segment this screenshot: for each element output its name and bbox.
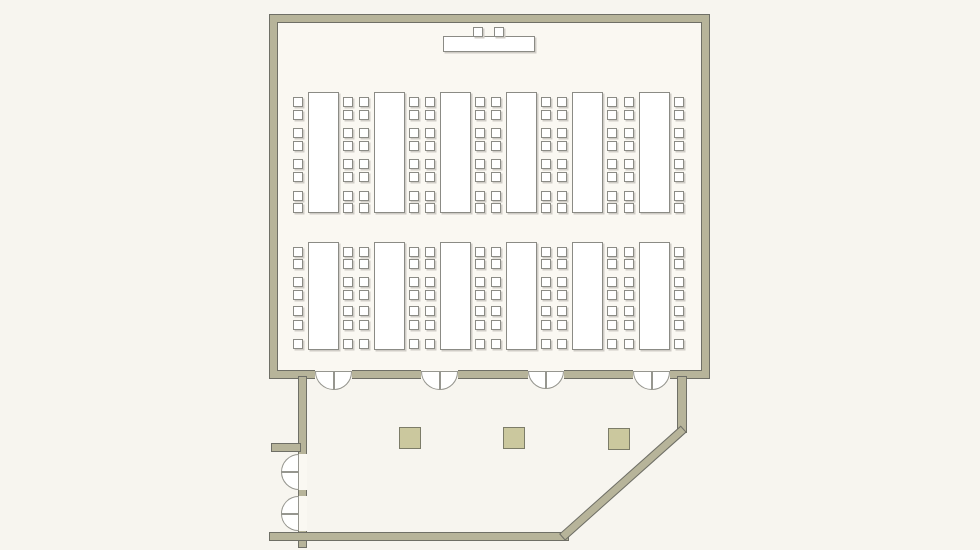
chair xyxy=(674,110,684,120)
chair xyxy=(343,339,353,349)
chair xyxy=(491,141,501,151)
chair xyxy=(607,339,617,349)
chair xyxy=(425,320,435,330)
chair xyxy=(674,306,684,316)
chair xyxy=(293,128,303,138)
chair xyxy=(674,259,684,269)
chair xyxy=(557,172,567,182)
chair xyxy=(674,141,684,151)
chair xyxy=(343,203,353,213)
structural-column xyxy=(503,427,525,449)
chair xyxy=(541,247,551,257)
chair xyxy=(359,159,369,169)
chair xyxy=(624,339,634,349)
chair xyxy=(343,320,353,330)
door-leaf xyxy=(440,371,459,390)
chair xyxy=(409,259,419,269)
door-opening xyxy=(298,454,307,490)
chair xyxy=(475,306,485,316)
chair xyxy=(624,203,634,213)
chair xyxy=(475,97,485,107)
chair xyxy=(624,191,634,201)
chair xyxy=(674,320,684,330)
chair xyxy=(674,247,684,257)
chair xyxy=(607,290,617,300)
banquet-table xyxy=(506,242,537,350)
chair xyxy=(491,247,501,257)
banquet-table xyxy=(572,92,603,213)
chair xyxy=(293,141,303,151)
chair xyxy=(343,128,353,138)
chair xyxy=(359,339,369,349)
lobby-bottom-wall xyxy=(270,533,568,540)
banquet-table xyxy=(572,242,603,350)
chair xyxy=(541,110,551,120)
chair xyxy=(557,306,567,316)
chair xyxy=(343,277,353,287)
chair xyxy=(607,320,617,330)
chair xyxy=(674,339,684,349)
banquet-table xyxy=(639,242,670,350)
chair xyxy=(359,247,369,257)
door-leaf xyxy=(281,496,299,514)
chair xyxy=(425,128,435,138)
chair xyxy=(541,172,551,182)
chair xyxy=(293,172,303,182)
chair xyxy=(557,128,567,138)
chair xyxy=(607,191,617,201)
chair xyxy=(409,159,419,169)
chair xyxy=(607,247,617,257)
chair xyxy=(425,172,435,182)
door-leaf xyxy=(281,472,299,490)
banquet-table xyxy=(374,242,405,350)
chair xyxy=(475,141,485,151)
chair xyxy=(343,259,353,269)
chair xyxy=(359,277,369,287)
chair xyxy=(674,159,684,169)
chair xyxy=(624,97,634,107)
chair xyxy=(475,110,485,120)
chair xyxy=(359,191,369,201)
chair xyxy=(343,191,353,201)
chair xyxy=(425,141,435,151)
chair xyxy=(541,203,551,213)
door-leaf xyxy=(528,371,546,389)
chair xyxy=(557,97,567,107)
chair xyxy=(607,97,617,107)
chair xyxy=(607,172,617,182)
chair xyxy=(607,128,617,138)
chair xyxy=(409,277,419,287)
chair xyxy=(624,128,634,138)
chair xyxy=(359,290,369,300)
chair xyxy=(409,339,419,349)
chair xyxy=(607,203,617,213)
chair xyxy=(343,172,353,182)
chair xyxy=(475,259,485,269)
chair xyxy=(607,110,617,120)
floor-plan xyxy=(0,0,980,550)
chair xyxy=(557,141,567,151)
chair xyxy=(607,277,617,287)
head-table xyxy=(443,36,535,52)
chair xyxy=(624,320,634,330)
chair xyxy=(293,277,303,287)
chair xyxy=(359,97,369,107)
chair xyxy=(425,247,435,257)
chair xyxy=(425,290,435,300)
chair xyxy=(674,128,684,138)
chair xyxy=(624,110,634,120)
chair xyxy=(624,141,634,151)
chair xyxy=(359,203,369,213)
chair xyxy=(409,172,419,182)
chair xyxy=(293,159,303,169)
chair xyxy=(491,203,501,213)
chair xyxy=(293,306,303,316)
chair xyxy=(475,128,485,138)
chair xyxy=(674,191,684,201)
chair xyxy=(475,277,485,287)
chair xyxy=(425,110,435,120)
chair xyxy=(607,141,617,151)
chair xyxy=(674,97,684,107)
chair xyxy=(425,306,435,316)
chair xyxy=(475,320,485,330)
chair xyxy=(541,277,551,287)
chair xyxy=(293,320,303,330)
chair xyxy=(359,141,369,151)
chair xyxy=(409,320,419,330)
banquet-table xyxy=(639,92,670,213)
chair xyxy=(359,128,369,138)
chair xyxy=(541,141,551,151)
chair xyxy=(557,191,567,201)
chair xyxy=(343,247,353,257)
chair xyxy=(624,290,634,300)
chair xyxy=(491,159,501,169)
chair xyxy=(425,191,435,201)
chair xyxy=(475,203,485,213)
chair xyxy=(607,159,617,169)
chair xyxy=(607,259,617,269)
chair xyxy=(541,320,551,330)
door-leaf xyxy=(633,371,652,390)
chair xyxy=(557,339,567,349)
chair xyxy=(541,128,551,138)
chair xyxy=(409,141,419,151)
door-opening xyxy=(298,496,307,531)
chair xyxy=(624,159,634,169)
lobby-right-wall xyxy=(678,377,686,432)
chair xyxy=(343,97,353,107)
chair xyxy=(343,110,353,120)
chair xyxy=(557,277,567,287)
chair xyxy=(293,247,303,257)
chair xyxy=(359,110,369,120)
chair xyxy=(359,172,369,182)
chair xyxy=(624,247,634,257)
chair xyxy=(425,203,435,213)
chair xyxy=(343,159,353,169)
lobby-left-wall-upper xyxy=(299,377,306,454)
chair xyxy=(409,110,419,120)
chair xyxy=(557,290,567,300)
chair xyxy=(674,203,684,213)
chair xyxy=(607,306,617,316)
chair xyxy=(491,172,501,182)
chair xyxy=(359,259,369,269)
chair xyxy=(425,159,435,169)
chair xyxy=(624,306,634,316)
chair xyxy=(491,320,501,330)
chair xyxy=(624,172,634,182)
chair xyxy=(409,290,419,300)
chair xyxy=(624,277,634,287)
door-leaf xyxy=(281,514,299,532)
chair xyxy=(541,339,551,349)
door-leaf xyxy=(652,371,671,390)
chair xyxy=(293,203,303,213)
door-leaf xyxy=(334,371,353,390)
banquet-table xyxy=(308,92,339,213)
head-table-chair xyxy=(473,27,483,37)
chair xyxy=(541,159,551,169)
chair xyxy=(491,128,501,138)
chair xyxy=(541,259,551,269)
chair xyxy=(293,339,303,349)
chair xyxy=(541,97,551,107)
door-leaf xyxy=(546,371,564,389)
door-leaf xyxy=(315,371,334,390)
banquet-table xyxy=(440,92,471,213)
banquet-table xyxy=(506,92,537,213)
chair xyxy=(541,306,551,316)
chair xyxy=(409,247,419,257)
chair xyxy=(343,290,353,300)
chair xyxy=(425,339,435,349)
chair xyxy=(674,172,684,182)
chair xyxy=(557,259,567,269)
chair xyxy=(425,277,435,287)
door-leaf xyxy=(421,371,440,390)
chair xyxy=(293,191,303,201)
chair xyxy=(475,247,485,257)
chair xyxy=(491,97,501,107)
chair xyxy=(674,277,684,287)
chair xyxy=(409,97,419,107)
lobby-left-stub-wall xyxy=(272,444,300,451)
chair xyxy=(557,203,567,213)
chair xyxy=(491,259,501,269)
door-leaf xyxy=(281,454,299,472)
chair xyxy=(557,247,567,257)
chair xyxy=(475,159,485,169)
chair xyxy=(557,159,567,169)
chair xyxy=(541,191,551,201)
chair xyxy=(491,110,501,120)
chair xyxy=(425,259,435,269)
banquet-table xyxy=(374,92,405,213)
chair xyxy=(409,191,419,201)
chair xyxy=(674,290,684,300)
structural-column xyxy=(399,427,421,449)
structural-column xyxy=(608,428,630,450)
chair xyxy=(293,97,303,107)
chair xyxy=(359,306,369,316)
chair xyxy=(425,97,435,107)
chair xyxy=(491,306,501,316)
chair xyxy=(491,277,501,287)
banquet-table xyxy=(440,242,471,350)
chair xyxy=(293,259,303,269)
chair xyxy=(557,110,567,120)
chair xyxy=(475,172,485,182)
chair xyxy=(343,306,353,316)
chair xyxy=(557,320,567,330)
chair xyxy=(293,290,303,300)
head-table-chair xyxy=(494,27,504,37)
chair xyxy=(343,141,353,151)
chair xyxy=(624,259,634,269)
chair xyxy=(491,191,501,201)
chair xyxy=(475,191,485,201)
banquet-table xyxy=(308,242,339,350)
chair xyxy=(541,290,551,300)
chair xyxy=(293,110,303,120)
chair xyxy=(409,306,419,316)
chair xyxy=(409,128,419,138)
chair xyxy=(475,339,485,349)
chair xyxy=(409,203,419,213)
chair xyxy=(491,339,501,349)
chair xyxy=(475,290,485,300)
chair xyxy=(359,320,369,330)
chair xyxy=(491,290,501,300)
